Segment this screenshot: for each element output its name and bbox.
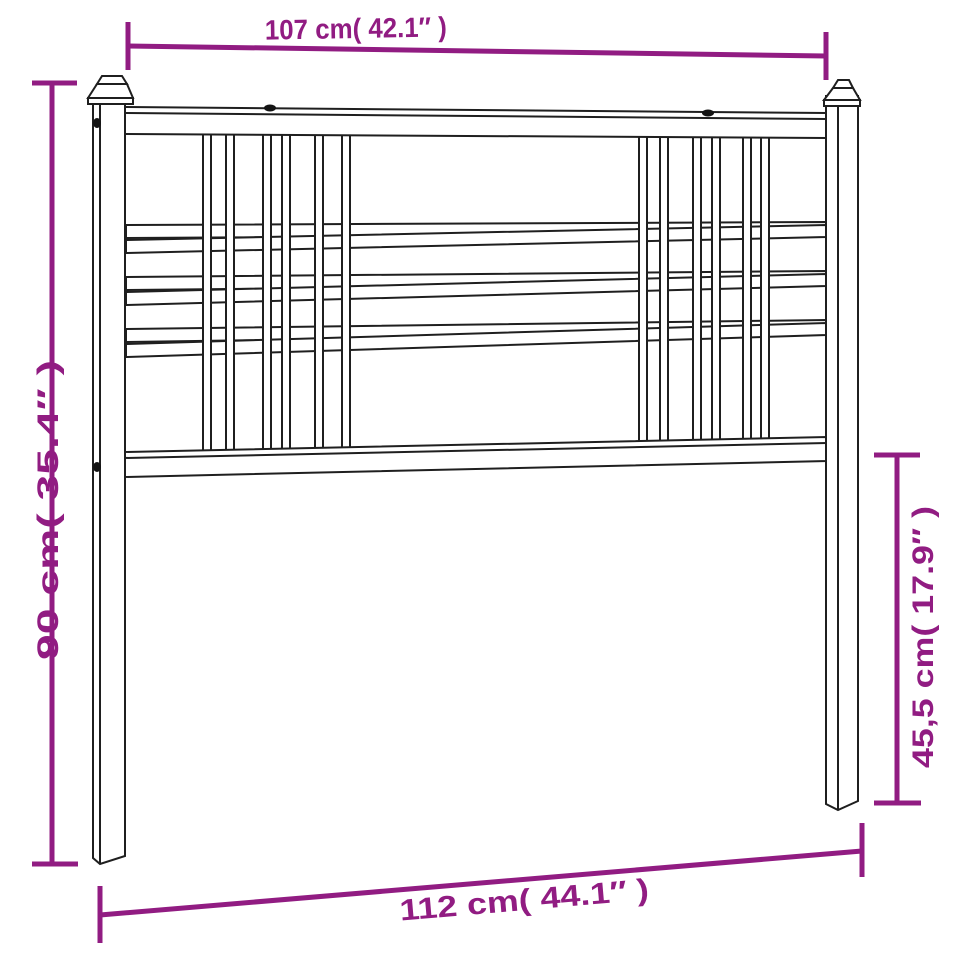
slat: [712, 132, 720, 450]
headboard-dimension-diagram: 107 cm( 42.1″ ) 90 cm( 35.4″ ) 45,5 cm( …: [0, 0, 955, 955]
dimension-left: 90 cm( 35.4″ ): [32, 83, 78, 864]
slat: [743, 133, 751, 450]
slat: [342, 130, 350, 457]
dimension-top-line: [128, 46, 826, 56]
dimension-top: 107 cm( 42.1″ ): [128, 11, 826, 80]
headboard-drawing: [88, 76, 860, 864]
slats-right-group: [639, 132, 769, 452]
right-post: [826, 96, 858, 810]
dimension-right-label: 45,5 cm( 17.9″ ): [907, 506, 940, 768]
screw-dot: [93, 462, 101, 472]
slat: [203, 130, 211, 460]
slat: [639, 132, 647, 452]
dimension-top-label: 107 cm( 42.1″ ): [265, 11, 448, 45]
dimension-right: 45,5 cm( 17.9″ ): [874, 455, 940, 803]
screw-dot: [93, 118, 101, 128]
dimension-left-label: 90 cm( 35.4″ ): [32, 360, 65, 660]
slat: [761, 133, 769, 449]
slat: [226, 130, 234, 460]
slat: [263, 130, 271, 459]
left-post: [93, 96, 125, 864]
right-post-cap: [824, 80, 860, 106]
screw-dot: [264, 105, 276, 112]
dimension-bottom: 112 cm( 44.1″ ): [100, 823, 862, 943]
diagram-canvas: 107 cm( 42.1″ ) 90 cm( 35.4″ ) 45,5 cm( …: [0, 0, 955, 955]
slat: [282, 130, 290, 459]
slat: [693, 132, 701, 451]
slat: [315, 130, 323, 458]
screw-dot: [702, 110, 714, 117]
slat: [660, 132, 668, 452]
left-post-cap: [88, 76, 133, 104]
top-rail: [125, 107, 827, 138]
